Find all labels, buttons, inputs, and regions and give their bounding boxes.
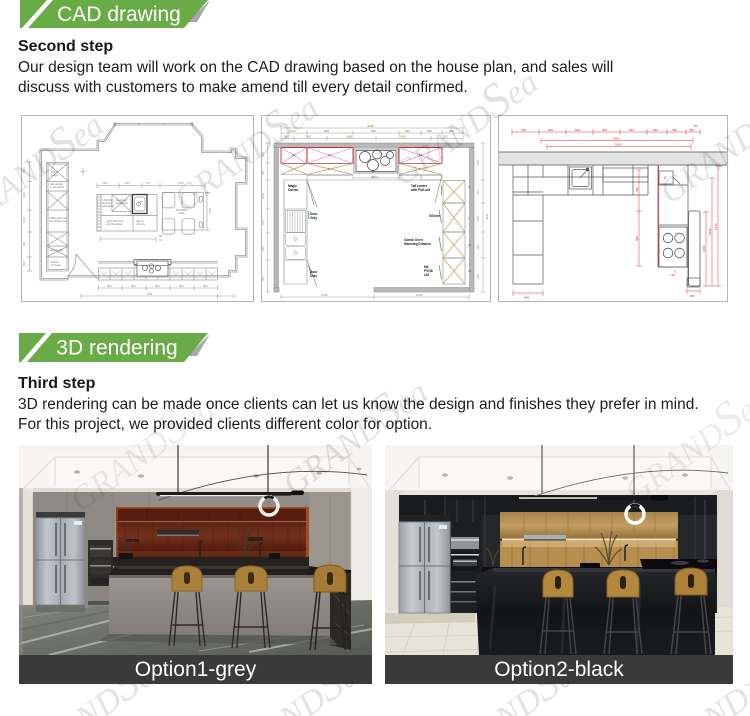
svg-text:600: 600 bbox=[131, 284, 136, 288]
svg-text:600: 600 bbox=[521, 128, 526, 132]
svg-text:93: 93 bbox=[159, 238, 163, 242]
svg-text:unit wine: unit wine bbox=[136, 223, 146, 226]
svg-text:3900: 3900 bbox=[261, 213, 263, 220]
svg-text:in situ larder: in situ larder bbox=[50, 185, 64, 189]
svg-text:C: C bbox=[664, 175, 667, 180]
svg-text:600: 600 bbox=[629, 128, 634, 132]
svg-text:Corner: Corner bbox=[288, 188, 299, 192]
svg-text:18: 18 bbox=[419, 153, 423, 157]
svg-text:940: 940 bbox=[405, 129, 410, 133]
svg-text:800: 800 bbox=[22, 241, 26, 246]
svg-text:600: 600 bbox=[602, 128, 607, 132]
svg-text:900: 900 bbox=[635, 236, 639, 241]
svg-text:303.2: 303.2 bbox=[371, 175, 378, 179]
svg-text:900: 900 bbox=[155, 284, 160, 288]
svg-text:2030: 2030 bbox=[321, 293, 328, 297]
svg-text:1008: 1008 bbox=[399, 135, 406, 139]
svg-text:300: 300 bbox=[261, 170, 265, 175]
svg-text:650: 650 bbox=[635, 187, 639, 192]
svg-text:900: 900 bbox=[125, 181, 130, 185]
svg-text:fridge: fridge bbox=[51, 173, 58, 177]
svg-text:Only: Only bbox=[310, 216, 317, 220]
svg-text:bin base: bin base bbox=[51, 263, 61, 267]
svg-text:2568: 2568 bbox=[708, 228, 712, 235]
svg-text:Only: Only bbox=[310, 274, 317, 278]
svg-text:4700: 4700 bbox=[146, 292, 153, 296]
svg-text:600: 600 bbox=[548, 128, 553, 132]
svg-text:900: 900 bbox=[476, 244, 480, 249]
svg-text:20: 20 bbox=[292, 153, 296, 157]
svg-text:560: 560 bbox=[261, 152, 265, 157]
svg-text:830: 830 bbox=[261, 246, 265, 251]
svg-text:600: 600 bbox=[575, 128, 580, 132]
svg-text:LM: LM bbox=[424, 273, 429, 277]
svg-text:5240: 5240 bbox=[615, 142, 622, 146]
svg-text:tall storage: tall storage bbox=[50, 248, 63, 252]
svg-text:2145: 2145 bbox=[714, 223, 718, 230]
svg-text:1080: 1080 bbox=[346, 135, 353, 139]
svg-text:1012: 1012 bbox=[289, 129, 296, 133]
svg-text:12: 12 bbox=[468, 269, 472, 273]
svg-text:747: 747 bbox=[146, 181, 151, 185]
svg-text:50: 50 bbox=[694, 124, 698, 128]
svg-text:1000: 1000 bbox=[22, 216, 26, 223]
svg-text:900: 900 bbox=[324, 129, 329, 133]
svg-text:dishwasher: dishwasher bbox=[116, 202, 128, 205]
svg-text:2030: 2030 bbox=[416, 293, 423, 297]
svg-text:900: 900 bbox=[371, 129, 376, 133]
svg-text:812: 812 bbox=[443, 135, 448, 139]
svg-text:450: 450 bbox=[672, 128, 677, 132]
svg-text:600: 600 bbox=[524, 296, 529, 300]
svg-text:1600: 1600 bbox=[702, 245, 706, 252]
svg-text:CAD drawing: CAD drawing bbox=[57, 3, 181, 26]
svg-text:800: 800 bbox=[449, 129, 454, 133]
svg-text:11: 11 bbox=[468, 243, 471, 247]
svg-text:18: 18 bbox=[328, 153, 332, 157]
svg-text:900: 900 bbox=[427, 129, 432, 133]
svg-text:3D rendering: 3D rendering bbox=[56, 337, 177, 360]
svg-text:450: 450 bbox=[653, 128, 658, 132]
svg-text:4036: 4036 bbox=[367, 124, 374, 128]
svg-text:Warming Drawers: Warming Drawers bbox=[404, 242, 431, 246]
svg-text:with Pull-out: with Pull-out bbox=[410, 188, 431, 192]
svg-text:unit 600 drawer: unit 600 drawer bbox=[106, 223, 123, 226]
svg-text:600: 600 bbox=[179, 284, 184, 288]
svg-text:3900: 3900 bbox=[485, 213, 489, 220]
svg-text:600: 600 bbox=[261, 276, 265, 281]
svg-text:with drawer bay: with drawer bay bbox=[49, 219, 68, 223]
svg-text:900: 900 bbox=[476, 274, 480, 279]
svg-text:600: 600 bbox=[22, 167, 26, 172]
svg-text:716: 716 bbox=[670, 273, 675, 277]
svg-text:360: 360 bbox=[689, 128, 694, 132]
svg-text:600: 600 bbox=[203, 284, 208, 288]
svg-text:250: 250 bbox=[690, 294, 695, 298]
svg-text:760: 760 bbox=[476, 190, 480, 195]
svg-text:940: 940 bbox=[103, 181, 108, 185]
svg-text:1000: 1000 bbox=[261, 192, 265, 199]
svg-text:960: 960 bbox=[476, 160, 480, 165]
svg-text:curb island: curb island bbox=[102, 205, 114, 208]
svg-text:600: 600 bbox=[107, 284, 112, 288]
svg-text:900: 900 bbox=[22, 192, 26, 197]
svg-text:900: 900 bbox=[476, 216, 480, 221]
svg-text:S/Oven: S/Oven bbox=[429, 214, 440, 218]
svg-text:1527: 1527 bbox=[178, 181, 185, 185]
svg-text:900: 900 bbox=[306, 135, 311, 139]
svg-text:4700: 4700 bbox=[613, 136, 620, 140]
svg-text:table: table bbox=[179, 211, 185, 215]
svg-text:1500: 1500 bbox=[208, 207, 212, 214]
svg-text:624: 624 bbox=[284, 135, 289, 139]
svg-text:450: 450 bbox=[22, 261, 26, 266]
